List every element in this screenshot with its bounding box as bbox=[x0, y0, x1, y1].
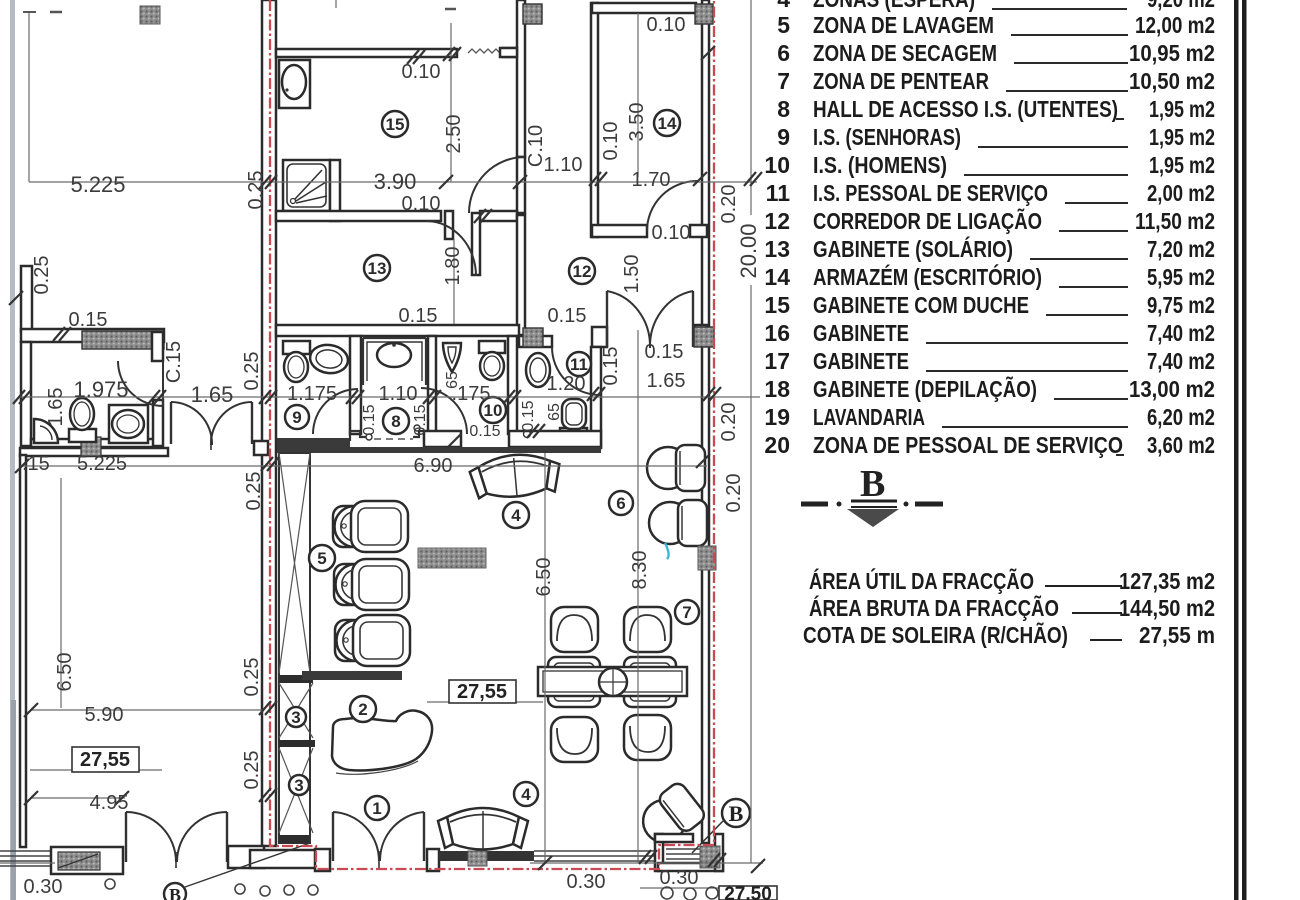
svg-text:9: 9 bbox=[292, 408, 301, 427]
svg-text:9,20 m2: 9,20 m2 bbox=[1147, 0, 1215, 12]
svg-text:4: 4 bbox=[777, 0, 790, 12]
svg-text:0.15: 0.15 bbox=[412, 404, 429, 435]
svg-text:I.S. PESSOAL DE SERVIÇO: I.S. PESSOAL DE SERVIÇO bbox=[813, 180, 1048, 206]
svg-text:B: B bbox=[169, 885, 181, 900]
svg-text:B: B bbox=[729, 801, 744, 826]
svg-text:144,50 m2: 144,50 m2 bbox=[1119, 595, 1215, 621]
svg-text:7,20 m2: 7,20 m2 bbox=[1147, 236, 1215, 262]
svg-text:C.10: C.10 bbox=[525, 125, 547, 167]
svg-text:20: 20 bbox=[764, 432, 790, 458]
svg-text:27,55: 27,55 bbox=[457, 681, 507, 703]
svg-text:0.20: 0.20 bbox=[718, 403, 740, 442]
svg-text:ÁREA ÚTIL DA FRACÇÃO: ÁREA ÚTIL DA FRACÇÃO bbox=[809, 567, 1034, 594]
svg-text:0.15: 0.15 bbox=[469, 423, 500, 440]
svg-text:4: 4 bbox=[511, 506, 521, 525]
svg-text:6: 6 bbox=[777, 40, 790, 66]
svg-text:1.65: 1.65 bbox=[191, 382, 234, 407]
svg-text:0.20: 0.20 bbox=[718, 185, 740, 224]
svg-text:1.65: 1.65 bbox=[647, 370, 686, 392]
svg-text:0.25: 0.25 bbox=[241, 352, 263, 391]
svg-text:ÁREA BRUTA DA FRACÇÃO: ÁREA BRUTA DA FRACÇÃO bbox=[809, 594, 1059, 621]
svg-text:10: 10 bbox=[764, 152, 790, 178]
svg-text:C.15: C.15 bbox=[163, 341, 185, 383]
svg-text:ZONA DE PESSOAL DE SERVIÇO: ZONA DE PESSOAL DE SERVIÇO bbox=[813, 432, 1123, 458]
svg-text:13: 13 bbox=[368, 259, 387, 278]
svg-text:8.30: 8.30 bbox=[629, 551, 651, 590]
svg-text:15: 15 bbox=[764, 292, 790, 318]
svg-text:5: 5 bbox=[317, 549, 326, 568]
svg-text:0.10: 0.10 bbox=[600, 122, 622, 161]
svg-text:7: 7 bbox=[682, 603, 691, 622]
svg-text:HALL DE ACESSO I.S. (UTENTES): HALL DE ACESSO I.S. (UTENTES) bbox=[813, 96, 1118, 122]
svg-text:0.10: 0.10 bbox=[652, 222, 691, 244]
svg-text:0.25: 0.25 bbox=[245, 171, 267, 210]
svg-text:2: 2 bbox=[358, 700, 367, 719]
svg-text:1.80: 1.80 bbox=[442, 247, 464, 286]
svg-text:27,55: 27,55 bbox=[80, 749, 130, 771]
svg-text:13: 13 bbox=[764, 236, 790, 262]
svg-text:ZONAS (ESPERA): ZONAS (ESPERA) bbox=[813, 0, 975, 12]
svg-text:20.00: 20.00 bbox=[736, 223, 761, 278]
svg-text:I.S. (SENHORAS): I.S. (SENHORAS) bbox=[813, 124, 961, 150]
svg-text:1.50: 1.50 bbox=[621, 255, 643, 294]
svg-text:GABINETE (DEPILAÇÃO): GABINETE (DEPILAÇÃO) bbox=[813, 375, 1037, 402]
svg-text:1,95 m2: 1,95 m2 bbox=[1149, 124, 1215, 150]
svg-text:0.15: 0.15 bbox=[600, 347, 622, 386]
svg-text:27,55 m: 27,55 m bbox=[1139, 622, 1215, 648]
svg-text:19: 19 bbox=[764, 404, 790, 430]
svg-text:6.50: 6.50 bbox=[54, 653, 76, 692]
svg-text:7,40 m2: 7,40 m2 bbox=[1147, 320, 1215, 346]
svg-text:1.975: 1.975 bbox=[73, 377, 128, 402]
svg-text:I.S. (HOMENS): I.S. (HOMENS) bbox=[813, 152, 947, 178]
svg-text:12: 12 bbox=[573, 262, 592, 281]
svg-text:0.15: 0.15 bbox=[361, 404, 378, 435]
svg-text:0.30: 0.30 bbox=[567, 871, 606, 893]
svg-text:ZONA DE LAVAGEM: ZONA DE LAVAGEM bbox=[813, 12, 994, 38]
svg-text:.15: .15 bbox=[22, 453, 50, 475]
svg-text:COTA DE SOLEIRA (R/CHÃO): COTA DE SOLEIRA (R/CHÃO) bbox=[803, 621, 1068, 648]
svg-text:9,75 m2: 9,75 m2 bbox=[1147, 292, 1215, 318]
svg-text:12,00 m2: 12,00 m2 bbox=[1135, 12, 1215, 38]
svg-text:10,95 m2: 10,95 m2 bbox=[1129, 40, 1215, 66]
svg-text:9: 9 bbox=[777, 124, 790, 150]
svg-text:3.90: 3.90 bbox=[374, 169, 417, 194]
svg-text:3.50: 3.50 bbox=[626, 103, 648, 142]
svg-text:GABINETE (SOLÁRIO): GABINETE (SOLÁRIO) bbox=[813, 235, 1013, 262]
svg-text:5,95 m2: 5,95 m2 bbox=[1147, 264, 1215, 290]
svg-text:6,20 m2: 6,20 m2 bbox=[1147, 404, 1215, 430]
svg-text:ARMAZÉM (ESCRITÓRIO): ARMAZÉM (ESCRITÓRIO) bbox=[813, 263, 1042, 290]
svg-text:14: 14 bbox=[764, 264, 790, 290]
svg-text:0.15: 0.15 bbox=[548, 305, 587, 327]
svg-text:LAVANDARIA: LAVANDARIA bbox=[813, 404, 925, 430]
svg-text:0.10: 0.10 bbox=[402, 193, 441, 215]
svg-text:1: 1 bbox=[372, 799, 381, 818]
svg-text:GABINETE: GABINETE bbox=[813, 320, 909, 346]
svg-text:1,95 m2: 1,95 m2 bbox=[1149, 96, 1215, 122]
svg-text:7,40 m2: 7,40 m2 bbox=[1147, 348, 1215, 374]
svg-text:6.90: 6.90 bbox=[414, 455, 453, 477]
svg-text:0.25: 0.25 bbox=[243, 472, 265, 511]
svg-text:11,50 m2: 11,50 m2 bbox=[1135, 208, 1215, 234]
svg-text:18: 18 bbox=[764, 376, 790, 402]
svg-text:1.65: 1.65 bbox=[45, 388, 67, 427]
svg-text:CORREDOR DE LIGAÇÃO: CORREDOR DE LIGAÇÃO bbox=[813, 207, 1042, 234]
svg-text:10,50 m2: 10,50 m2 bbox=[1129, 68, 1215, 94]
svg-text:65: 65 bbox=[546, 403, 563, 421]
svg-text:5.225: 5.225 bbox=[77, 453, 127, 475]
svg-text:0.30: 0.30 bbox=[24, 876, 63, 898]
svg-text:3,60 m2: 3,60 m2 bbox=[1147, 432, 1215, 458]
svg-text:2,00 m2: 2,00 m2 bbox=[1147, 180, 1215, 206]
svg-text:ZONA DE SECAGEM: ZONA DE SECAGEM bbox=[813, 40, 997, 66]
svg-text:1.20: 1.20 bbox=[547, 373, 586, 395]
svg-text:0.15: 0.15 bbox=[69, 309, 108, 331]
svg-text:1.10: 1.10 bbox=[379, 383, 418, 405]
svg-text:1.10: 1.10 bbox=[544, 154, 583, 176]
svg-text:0.25: 0.25 bbox=[241, 751, 263, 790]
svg-text:2.50: 2.50 bbox=[443, 115, 465, 154]
svg-text:5: 5 bbox=[777, 12, 790, 38]
svg-text:0.25: 0.25 bbox=[241, 658, 263, 697]
svg-text:1.175: 1.175 bbox=[287, 383, 337, 405]
svg-text:0.30: 0.30 bbox=[660, 867, 699, 889]
svg-text:16: 16 bbox=[764, 320, 790, 346]
svg-text:8: 8 bbox=[777, 96, 790, 122]
svg-text:0.10: 0.10 bbox=[647, 14, 686, 36]
svg-text:0.15: 0.15 bbox=[399, 305, 438, 327]
svg-text:17: 17 bbox=[764, 348, 790, 374]
svg-text:ZONA DE PENTEAR: ZONA DE PENTEAR bbox=[813, 68, 989, 94]
svg-text:GABINETE COM DUCHE: GABINETE COM DUCHE bbox=[813, 292, 1029, 318]
svg-text:8: 8 bbox=[391, 412, 400, 431]
svg-text:0.10: 0.10 bbox=[402, 61, 441, 83]
svg-text:0.25: 0.25 bbox=[31, 256, 53, 295]
svg-text:65: 65 bbox=[444, 371, 461, 389]
svg-text:11: 11 bbox=[570, 355, 588, 374]
svg-text:5.225: 5.225 bbox=[70, 172, 125, 197]
svg-text:4: 4 bbox=[521, 785, 531, 804]
svg-text:6: 6 bbox=[616, 494, 625, 513]
svg-text:0.15: 0.15 bbox=[645, 341, 684, 363]
svg-text:14: 14 bbox=[658, 114, 677, 133]
svg-text:27,50: 27,50 bbox=[724, 884, 772, 900]
svg-text:11: 11 bbox=[766, 180, 791, 206]
svg-text:12: 12 bbox=[764, 208, 790, 234]
svg-text:3: 3 bbox=[291, 708, 300, 727]
svg-text:1.70: 1.70 bbox=[632, 169, 671, 191]
svg-text:15: 15 bbox=[386, 115, 405, 134]
svg-text:5.90: 5.90 bbox=[85, 704, 124, 726]
svg-text:B: B bbox=[860, 463, 885, 505]
svg-text:4.95: 4.95 bbox=[90, 792, 129, 814]
svg-text:0.15: 0.15 bbox=[520, 400, 537, 431]
svg-text:1,95 m2: 1,95 m2 bbox=[1149, 152, 1215, 178]
svg-text:127,35 m2: 127,35 m2 bbox=[1119, 568, 1215, 594]
svg-text:6.50: 6.50 bbox=[533, 558, 555, 597]
svg-text:GABINETE: GABINETE bbox=[813, 348, 909, 374]
svg-text:3: 3 bbox=[294, 776, 303, 795]
svg-text:0.20: 0.20 bbox=[723, 474, 745, 513]
svg-text:13,00 m2: 13,00 m2 bbox=[1129, 376, 1215, 402]
svg-text:7: 7 bbox=[777, 68, 790, 94]
